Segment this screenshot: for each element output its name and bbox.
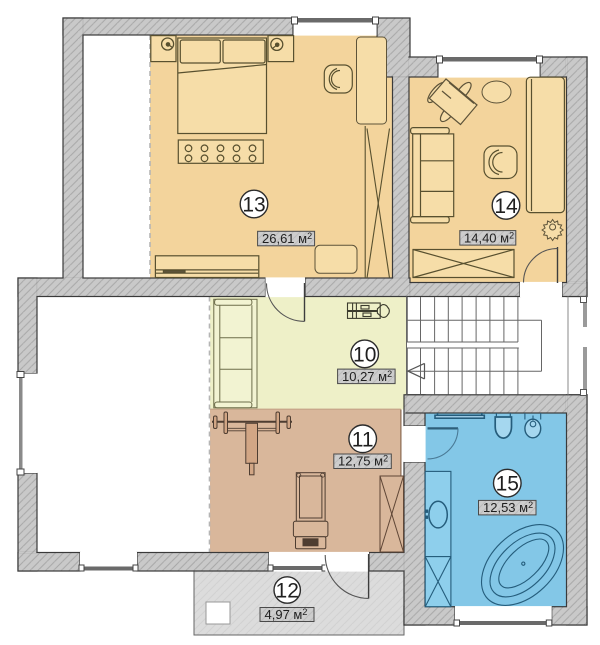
svg-text:12,53 м2: 12,53 м2: [483, 500, 533, 515]
svg-text:13: 13: [242, 194, 265, 217]
svg-text:12: 12: [276, 579, 299, 602]
svg-text:14: 14: [494, 195, 518, 218]
svg-text:14,40 м2: 14,40 м2: [464, 230, 514, 245]
svg-text:4,97 м2: 4,97 м2: [265, 607, 308, 622]
svg-text:15: 15: [496, 473, 519, 496]
svg-text:12,75 м2: 12,75 м2: [338, 454, 388, 469]
svg-text:11: 11: [352, 428, 374, 451]
svg-text:10: 10: [353, 343, 376, 366]
svg-text:10,27 м2: 10,27 м2: [342, 369, 392, 384]
svg-text:26,61 м2: 26,61 м2: [262, 231, 312, 246]
